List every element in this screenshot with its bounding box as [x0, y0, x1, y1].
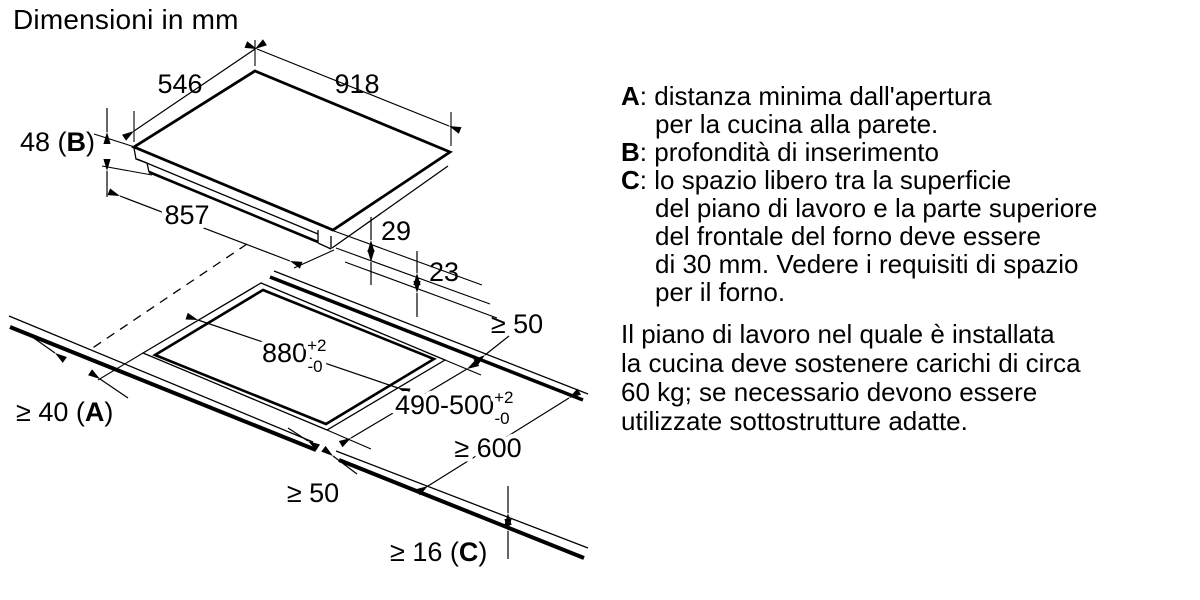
dim-600-label: ≥ 600 [454, 433, 521, 463]
clearance-50-top-label: ≥ 50 [491, 309, 543, 339]
dim-857-label: 857 [164, 200, 209, 230]
ext-857-right [294, 250, 334, 268]
legend-letter-C: C [621, 165, 640, 195]
note-line: la cucina deve sostenere carichi di circ… [621, 349, 1196, 378]
note-line: 60 kg; se necessario devono essere [621, 378, 1196, 407]
installation-note: Il piano di lavoro nel quale è installat… [621, 320, 1196, 436]
legend-item-C: C: lo spazio libero tra la superficie de… [621, 166, 1196, 306]
note-line: Il piano di lavoro nel quale è installat… [621, 320, 1196, 349]
dim-29-label: 29 [381, 216, 411, 246]
dim-23-label: 23 [429, 257, 459, 287]
dim-546-label: 546 [157, 69, 202, 99]
legend-text: profondità di inserimento [654, 137, 939, 167]
legend-text: di 30 mm. Vedere i requisiti di spazio [655, 250, 1196, 278]
legend-text: distanza minima dall'apertura [654, 81, 991, 111]
dim-48B-label: 48 (B) [20, 127, 95, 157]
ref-line-step-edge [336, 248, 490, 304]
legend: A: distanza minima dall'apertura per la … [621, 82, 1196, 306]
clearance-40A-label: ≥ 40 (A) [16, 397, 113, 427]
legend-item-B: B: profondità di inserimento [621, 138, 1196, 166]
hob-drawing: 546 918 48 (B) 857 29 23 [20, 40, 497, 318]
clearance-40A-arrow-2 [100, 379, 128, 398]
clearance-50-bottom-label: ≥ 50 [287, 478, 339, 508]
dim-918-label: 918 [334, 69, 379, 99]
legend-text: per la cucina alla parete. [655, 110, 1196, 138]
ext-48-bottom [102, 166, 152, 175]
legend-text: del frontale del forno deve essere [655, 222, 1196, 250]
ref-line-tub-edge [345, 262, 497, 318]
dimension-diagram-page: Dimensioni in mm [0, 0, 1200, 600]
technical-drawing: 546 918 48 (B) 857 29 23 [0, 0, 620, 600]
tub-notch-bottom [318, 243, 331, 249]
legend-text: per il forno. [655, 278, 1196, 306]
legend-text: lo spazio libero tra la superficie [654, 165, 1011, 195]
worktop-cutout-drawing: 880+2-0 490-500+2-0 ≥ 50 ≥ 40 (A) ≥ 50 ≥… [9, 244, 588, 567]
ext-490-left [327, 430, 371, 449]
worktop-front-edge-top-2 [336, 451, 588, 548]
legend-text: del piano di lavoro e la parte superiore [655, 194, 1196, 222]
legend-item-A: A: distanza minima dall'apertura per la … [621, 82, 1196, 138]
ext-490-right [445, 360, 481, 375]
legend-letter-A: A [621, 81, 640, 111]
dim-16C-label: ≥ 16 (C) [390, 537, 487, 567]
legend-letter-B: B [621, 137, 640, 167]
note-line: utilizzate sottostrutture adatte. [621, 407, 1196, 436]
dim-490-500-label: 490-500+2-0 [395, 388, 513, 428]
